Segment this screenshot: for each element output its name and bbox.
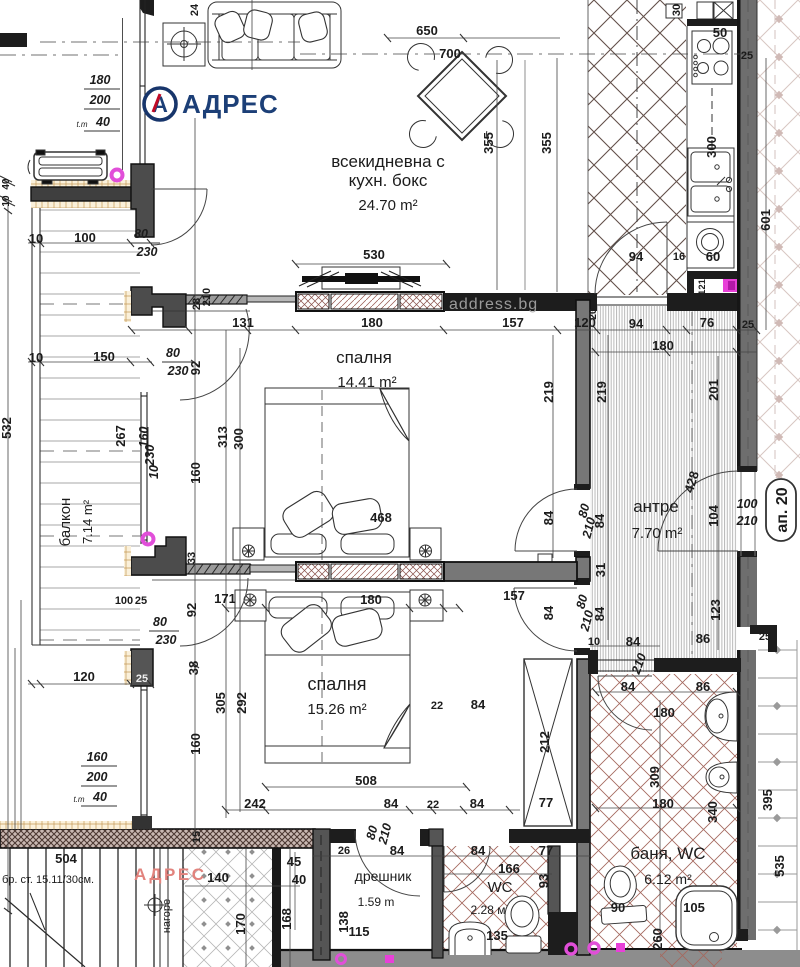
svg-text:25: 25 (759, 631, 771, 643)
svg-text:92: 92 (184, 603, 199, 617)
svg-text:15: 15 (191, 831, 203, 843)
svg-text:76: 76 (700, 315, 714, 330)
svg-text:24: 24 (189, 3, 201, 16)
svg-text:170: 170 (233, 913, 248, 935)
svg-text:219: 219 (594, 381, 609, 403)
svg-text:дрешник: дрешник (355, 868, 413, 884)
svg-text:210: 210 (736, 514, 758, 528)
svg-text:86: 86 (696, 679, 710, 694)
svg-text:157: 157 (503, 588, 525, 603)
svg-text:150: 150 (93, 349, 115, 364)
svg-text:230: 230 (155, 633, 177, 647)
svg-text:10: 10 (29, 231, 43, 246)
svg-text:80: 80 (153, 615, 167, 629)
svg-text:60: 60 (706, 249, 720, 264)
svg-text:40: 40 (1, 178, 12, 190)
svg-text:40: 40 (92, 790, 107, 804)
svg-text:84: 84 (541, 605, 556, 620)
svg-text:508: 508 (355, 773, 377, 788)
svg-text:180: 180 (90, 73, 111, 87)
svg-text:84: 84 (470, 796, 485, 811)
svg-text:601: 601 (758, 209, 773, 231)
svg-text:33: 33 (186, 552, 198, 564)
svg-text:ап. 20: ап. 20 (774, 487, 791, 532)
svg-text:спалня: спалня (336, 348, 392, 367)
svg-text:180: 180 (361, 315, 383, 330)
svg-text:2.28 м: 2.28 м (471, 903, 506, 917)
svg-text:300: 300 (704, 136, 719, 158)
svg-text:123: 123 (708, 599, 723, 621)
svg-text:530: 530 (363, 247, 385, 262)
svg-text:313: 313 (215, 426, 230, 448)
svg-text:бр. ст. 15.11/30см.: бр. ст. 15.11/30см. (2, 874, 94, 886)
svg-text:АДРЕС: АДРЕС (182, 89, 279, 119)
svg-text:t.m: t.m (76, 120, 87, 129)
svg-text:address.bg: address.bg (449, 296, 538, 313)
svg-text:АДРЕС: АДРЕС (134, 865, 206, 884)
svg-text:157: 157 (502, 315, 524, 330)
svg-text:104: 104 (706, 504, 721, 526)
svg-text:антре: антре (633, 497, 679, 516)
svg-text:кухн. бокс: кухн. бокс (349, 171, 428, 190)
svg-text:20: 20 (588, 308, 599, 320)
svg-text:86: 86 (696, 631, 710, 646)
svg-text:30: 30 (671, 4, 683, 16)
svg-text:131: 131 (232, 315, 254, 330)
svg-text:180: 180 (360, 592, 382, 607)
svg-text:309: 309 (647, 766, 662, 788)
svg-text:650: 650 (416, 23, 438, 38)
svg-text:355: 355 (539, 132, 554, 154)
svg-text:160: 160 (87, 750, 108, 764)
svg-text:84: 84 (621, 679, 636, 694)
svg-text:200: 200 (86, 770, 108, 784)
svg-text:267: 267 (113, 425, 128, 447)
svg-text:25: 25 (741, 50, 753, 62)
svg-text:84: 84 (471, 697, 486, 712)
svg-text:50: 50 (713, 25, 727, 40)
svg-text:10: 10 (29, 350, 43, 365)
svg-text:балкон: балкон (57, 498, 74, 547)
svg-text:395: 395 (760, 789, 775, 811)
svg-text:700: 700 (439, 46, 461, 61)
svg-text:230: 230 (167, 364, 189, 378)
svg-text:242: 242 (244, 796, 266, 811)
svg-text:120: 120 (73, 669, 95, 684)
svg-text:90: 90 (611, 900, 625, 915)
svg-text:нагоре: нагоре (161, 899, 173, 933)
svg-text:532: 532 (0, 417, 14, 439)
svg-text:40: 40 (292, 872, 306, 887)
svg-text:7.14 m²: 7.14 m² (80, 499, 95, 544)
svg-text:171: 171 (214, 591, 236, 606)
svg-text:баня, WC: баня, WC (630, 844, 705, 863)
svg-text:180: 180 (653, 705, 675, 720)
svg-text:355: 355 (481, 132, 496, 154)
svg-text:300: 300 (231, 428, 246, 450)
svg-text:80: 80 (134, 227, 148, 241)
svg-text:230: 230 (143, 445, 157, 467)
svg-text:25: 25 (136, 673, 148, 685)
svg-text:10: 10 (588, 636, 600, 648)
svg-text:121: 121 (697, 278, 708, 295)
svg-text:160: 160 (137, 427, 151, 448)
svg-text:25: 25 (742, 319, 754, 331)
svg-text:180: 180 (652, 796, 674, 811)
svg-text:94: 94 (629, 249, 644, 264)
svg-text:спалня: спалня (308, 674, 367, 694)
svg-text:31: 31 (593, 563, 608, 577)
svg-text:160: 160 (188, 462, 203, 484)
svg-text:10: 10 (1, 195, 12, 207)
svg-text:15.26 m²: 15.26 m² (307, 701, 366, 718)
svg-text:230: 230 (136, 245, 158, 259)
svg-text:45: 45 (287, 854, 301, 869)
svg-text:1.59 m: 1.59 m (358, 895, 395, 909)
svg-text:26: 26 (338, 845, 350, 857)
svg-text:84: 84 (626, 634, 641, 649)
svg-text:22: 22 (427, 799, 439, 811)
svg-text:25: 25 (135, 595, 147, 607)
svg-text:168: 168 (279, 908, 294, 930)
svg-text:219: 219 (541, 381, 556, 403)
svg-text:100: 100 (74, 230, 96, 245)
svg-text:160: 160 (188, 733, 203, 755)
svg-text:504: 504 (55, 851, 77, 866)
svg-text:94: 94 (629, 316, 644, 331)
svg-text:105: 105 (683, 900, 705, 915)
svg-text:212: 212 (537, 731, 552, 753)
svg-text:200: 200 (89, 93, 111, 107)
svg-text:84: 84 (390, 843, 405, 858)
svg-text:22: 22 (431, 700, 443, 712)
svg-text:10: 10 (147, 465, 161, 479)
svg-text:260: 260 (650, 928, 665, 950)
svg-text:40: 40 (95, 115, 110, 129)
svg-text:166: 166 (498, 861, 520, 876)
svg-text:всекидневна с: всекидневна с (331, 152, 445, 171)
svg-text:180: 180 (652, 338, 674, 353)
svg-text:305: 305 (213, 692, 228, 714)
svg-text:210: 210 (201, 288, 213, 306)
svg-text:115: 115 (349, 924, 370, 939)
svg-text:84: 84 (384, 796, 399, 811)
svg-text:535: 535 (772, 855, 787, 877)
svg-text:t.m: t.m (73, 795, 84, 804)
svg-text:292: 292 (234, 692, 249, 714)
svg-text:16: 16 (673, 251, 685, 263)
svg-text:84: 84 (471, 843, 486, 858)
svg-text:100: 100 (115, 595, 133, 607)
svg-text:80: 80 (166, 346, 180, 360)
svg-text:24.70 m²: 24.70 m² (358, 197, 417, 214)
svg-text:201: 201 (706, 379, 721, 401)
svg-text:WC: WC (488, 879, 513, 896)
svg-text:468: 468 (370, 510, 392, 525)
svg-text:135: 135 (486, 928, 508, 943)
svg-text:140: 140 (207, 870, 229, 885)
svg-text:77: 77 (539, 795, 553, 810)
svg-text:77: 77 (539, 843, 553, 858)
svg-text:93: 93 (536, 874, 551, 888)
svg-text:84: 84 (541, 510, 556, 525)
svg-text:6.12 m²: 6.12 m² (644, 871, 692, 887)
svg-text:340: 340 (705, 801, 720, 823)
svg-text:14.41 m²: 14.41 m² (337, 374, 396, 391)
svg-text:100: 100 (737, 497, 758, 511)
svg-text:38: 38 (186, 661, 201, 675)
svg-text:92: 92 (188, 361, 203, 375)
svg-text:7.70 m²: 7.70 m² (632, 525, 683, 542)
